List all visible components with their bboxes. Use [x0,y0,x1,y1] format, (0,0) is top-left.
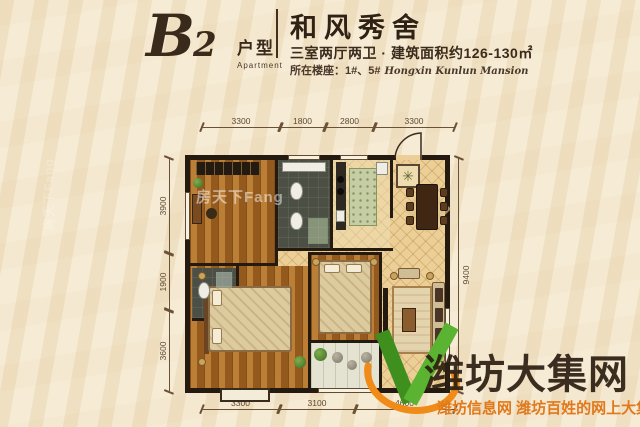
bathroom-counter [282,162,326,172]
site-watermark-title: 潍坊大集网 [424,342,629,400]
dim-bottom-2: 3100 [279,396,355,410]
kitchen-island-mat [349,168,377,226]
stove-burner [337,176,344,183]
floor-location-label: 所在楼座：1#、5# [290,65,380,77]
dimension-top: 3300 1800 2800 3300 [202,114,454,128]
page-title: 和风秀舍 [290,6,426,45]
garden-stone [347,360,357,370]
wall-partition [308,252,311,388]
dining-chair [440,216,448,225]
plan-code: B2 [146,2,215,70]
dining-chair [440,188,448,197]
bay-window [220,388,270,402]
floorplan-ad-page: { "header": { "plan_code": "B", "plan_co… [0,0,640,427]
sofa-cushion [435,288,443,302]
pillow [346,264,362,273]
dining-chair [406,202,414,211]
balcony-plant [314,348,327,361]
fridge [376,162,388,175]
dining-table [416,184,438,230]
bedroom-top-left [190,160,275,263]
wall-partition [308,252,382,255]
dim-left-1: 3900 [156,158,170,253]
armchair [398,268,420,279]
dining-chair [440,202,448,211]
fang-watermark: 房天下Fang [196,186,284,207]
shower [308,218,328,244]
window-left-bedroom [185,192,190,240]
side-table [390,272,398,280]
window-top-bath [288,155,320,160]
plan-code-digit: 2 [193,25,215,65]
floor-location: 所在楼座：1#、5#Hongxin Kunlun Mansion [290,62,528,78]
medallion-icon: ✳ [402,168,414,184]
pillow [324,264,340,273]
dim-top-2: 1800 [280,114,325,128]
nightstand [370,258,378,266]
site-watermark-tagline: 潍坊信息网 潍坊百姓的网上大集 [437,397,640,418]
toilet [290,182,303,200]
stool [206,208,217,219]
dining-chair [406,188,414,197]
wall-partition [278,248,393,251]
dim-left-3: 3600 [156,310,170,391]
dim-top-4: 3300 [374,114,454,128]
dining-chair [406,216,414,225]
dimension-left: 3900 1900 3600 [156,158,170,391]
floor-location-script: Hongxin Kunlun Mansion [384,66,528,77]
kitchen-sink [336,210,345,222]
dim-top-3: 2800 [325,114,374,128]
side-table [426,272,434,280]
wardrobe [196,162,260,175]
dim-top-1: 3300 [202,114,280,128]
dim-left-2: 1900 [156,253,170,310]
nightstand [198,272,206,280]
nightstand [312,258,320,266]
plan-specs: 三室两厅两卫 · 建筑面积约126-130㎡ [290,43,533,63]
entry-door-arc [392,129,424,161]
plan-code-letter: B [146,2,193,70]
garden-stone [332,352,343,363]
plant [294,356,306,368]
plan-type-en: Apartment [237,61,283,70]
fang-watermark-side: 房天下Fang [40,158,57,230]
toilet-ensuite [198,282,210,299]
stove-burner [337,188,344,195]
wall-partition [190,263,278,266]
nightstand [198,358,206,366]
wall-partition [390,160,393,218]
shower-ensuite [216,272,232,288]
pillow [212,290,222,306]
pillow [212,328,222,344]
window-top-kitchen [340,155,368,160]
wall-partition [330,160,333,248]
sofa-cushion [435,308,443,322]
header-divider [276,9,278,58]
bidet [290,212,303,230]
